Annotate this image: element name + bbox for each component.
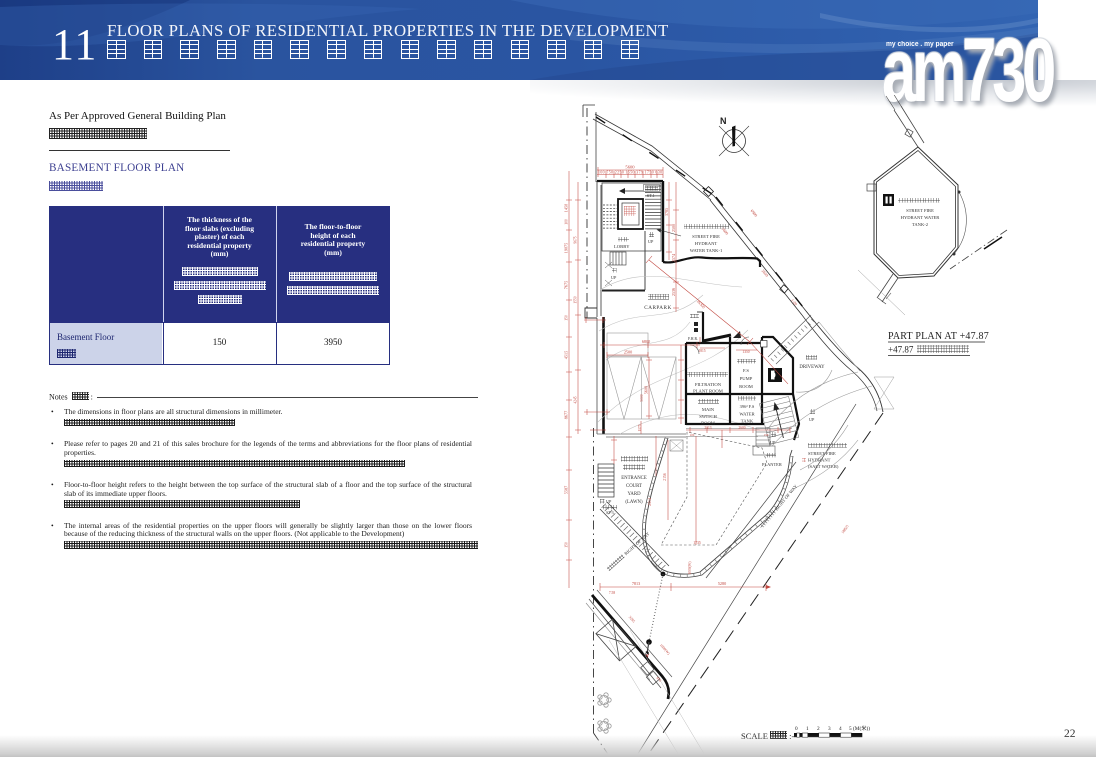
svg-text:STREET FIRE: STREET FIRE [906,208,934,213]
svg-text:4: 4 [839,726,842,732]
svg-text:8677: 8677 [564,411,569,419]
svg-text:(LAWN): (LAWN) [625,500,643,505]
svg-text:1175: 1175 [638,424,642,431]
svg-text:MAIN: MAIN [702,407,715,412]
svg-text:100: 100 [565,219,569,225]
svg-text:TANK: TANK [741,419,754,424]
svg-text:PLANT ROOM: PLANT ROOM [693,389,723,394]
svg-text:ROOM: ROOM [739,384,753,389]
svg-text:2574: 2574 [671,254,676,262]
svg-text:ST.1: ST.1 [647,193,655,198]
svg-text:STREET FIRE: STREET FIRE [808,451,836,456]
svg-text:TANK-2: TANK-2 [912,222,929,227]
svg-text:ENTRANCE: ENTRANCE [621,476,647,481]
svg-text:F.H.R.: F.H.R. [688,337,698,341]
svg-text:396³ F.S: 396³ F.S [740,404,755,409]
svg-text:WATER TANK-1: WATER TANK-1 [690,248,723,253]
svg-text:5587: 5587 [564,486,569,494]
svg-text:WATER: WATER [739,412,755,417]
svg-text:UP: UP [809,417,815,422]
svg-text:2314: 2314 [648,498,652,506]
svg-text:DRIVEWAY: DRIVEWAY [799,365,825,370]
svg-text:UP: UP [611,275,617,280]
svg-text:6800: 6800 [642,339,650,344]
svg-text:150: 150 [565,315,569,321]
svg-text:100: 100 [690,433,695,437]
svg-text:HYDRANT: HYDRANT [808,458,831,463]
svg-text:STREET FIRE: STREET FIRE [692,234,720,239]
svg-text:UP: UP [606,499,612,504]
svg-text:150: 150 [764,433,769,437]
svg-text:7813: 7813 [632,581,640,586]
svg-text:HYDRANT: HYDRANT [695,241,718,246]
svg-text:1: 1 [806,726,809,732]
svg-text:1550: 1550 [574,296,578,303]
svg-text:SWITCH: SWITCH [699,414,717,419]
svg-text:2156: 2156 [663,473,667,481]
svg-text:2313: 2313 [704,426,711,430]
svg-text:3785: 3785 [664,208,669,216]
svg-text:19075: 19075 [564,243,569,253]
svg-text:CARPARK: CARPARK [644,305,672,311]
svg-text:2536: 2536 [671,288,676,296]
svg-text:3: 3 [828,726,831,732]
svg-text:+47.87: +47.87 [888,345,914,355]
svg-text:1350: 1350 [742,350,749,354]
svg-text:UP: UP [648,239,654,244]
svg-text:FILTRATION: FILTRATION [695,382,722,387]
svg-text:5600: 5600 [644,386,649,394]
svg-text:26300: 26300 [696,299,706,310]
svg-text:9675: 9675 [574,236,578,243]
svg-text:1735: 1735 [693,541,701,545]
svg-text:100 750 2250 1550 379 1750 630: 100 750 2250 1550 379 1750 630 [598,171,662,175]
svg-text:7675: 7675 [564,281,569,289]
svg-text:0: 0 [795,726,798,732]
svg-text:5280: 5280 [718,581,726,586]
svg-text:2500: 2500 [624,350,632,355]
svg-text:2600: 2600 [738,426,745,430]
svg-text:7.58: 7.58 [609,591,615,595]
svg-text:2500: 2500 [671,224,676,232]
svg-text:5000: 5000 [640,394,644,401]
svg-text:PART PLAN AT +47.87: PART PLAN AT +47.87 [888,331,989,342]
svg-text:4245: 4245 [574,396,578,403]
svg-text:1815: 1815 [698,349,705,353]
svg-text:2: 2 [817,726,820,732]
svg-text:HYDRANT WATER: HYDRANT WATER [901,215,941,220]
svg-text:18825: 18825 [841,524,850,534]
svg-text:3285: 3285 [628,615,636,623]
svg-text:1450: 1450 [564,204,569,212]
svg-text:6900: 6900 [750,208,759,217]
svg-text:(SALT WATER): (SALT WATER) [808,464,839,469]
svg-text:1000(W): 1000(W) [659,643,671,656]
svg-text:ROOM: ROOM [701,421,715,426]
svg-text:1000(W): 1000(W) [688,561,692,575]
svg-text:PUMP: PUMP [740,376,753,381]
svg-text:2650: 2650 [761,268,770,277]
svg-text:150: 150 [565,542,569,548]
svg-text:LOBBY: LOBBY [614,244,630,249]
svg-text:F.S: F.S [743,368,749,373]
svg-text:5600: 5600 [625,165,635,170]
svg-text:4515: 4515 [564,351,569,359]
svg-text:5 (M(米)): 5 (M(米)) [849,725,870,732]
svg-text:COURT: COURT [626,484,642,489]
svg-text:N: N [720,116,727,126]
svg-text:YARD: YARD [627,492,641,497]
